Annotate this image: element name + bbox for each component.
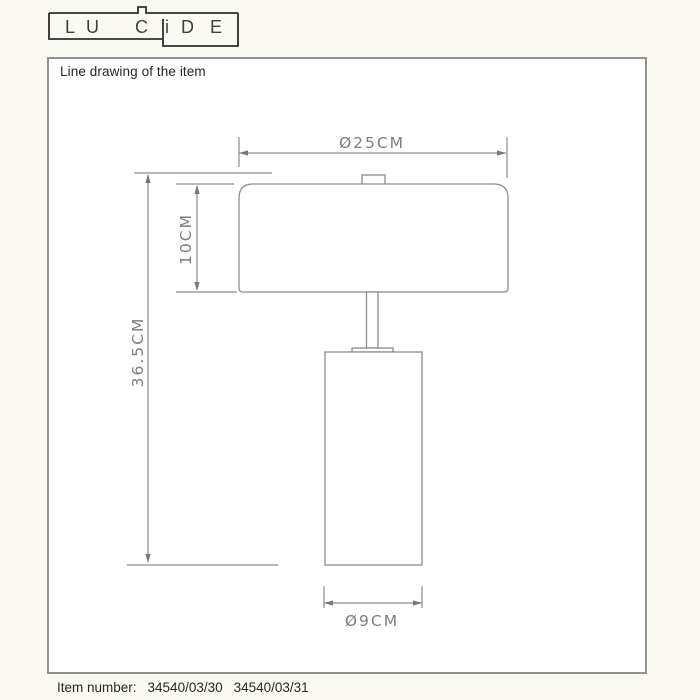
arrow-down-icon — [145, 554, 150, 563]
arrow-right-icon — [497, 150, 506, 155]
dimension-label-shade-height: 10CM — [177, 213, 195, 265]
arrow-left-icon — [239, 150, 248, 155]
arrow-left-icon — [324, 600, 333, 605]
dimension-base-diameter: Ø9CM — [324, 586, 422, 630]
lamp-line-drawing: Ø25CM 10CM 36.5CM Ø9CM — [0, 0, 700, 700]
arrow-up-icon — [145, 174, 150, 183]
page: { "window": { "background_color": "#fbfa… — [0, 0, 700, 700]
dimension-shade-height: 10CM — [176, 184, 237, 292]
dimension-shade-diameter: Ø25CM — [239, 134, 507, 178]
arrow-down-icon — [194, 282, 199, 291]
arrow-right-icon — [413, 600, 422, 605]
item-number-label: Item number: — [57, 680, 137, 695]
lamp-shade — [239, 184, 508, 292]
lamp-stem — [367, 292, 379, 348]
dimension-label-shade-diameter: Ø25CM — [339, 134, 405, 152]
dimension-label-base-diameter: Ø9CM — [345, 612, 399, 630]
lamp-base — [325, 352, 422, 565]
lamp-geometry — [239, 175, 508, 565]
item-number-row: Item number:34540/03/3034540/03/31 — [57, 680, 309, 695]
item-number-value: 34540/03/31 — [234, 680, 309, 695]
dimension-label-total-height: 36.5CM — [129, 317, 147, 388]
arrow-up-icon — [194, 185, 199, 194]
item-number-value: 34540/03/30 — [148, 680, 223, 695]
